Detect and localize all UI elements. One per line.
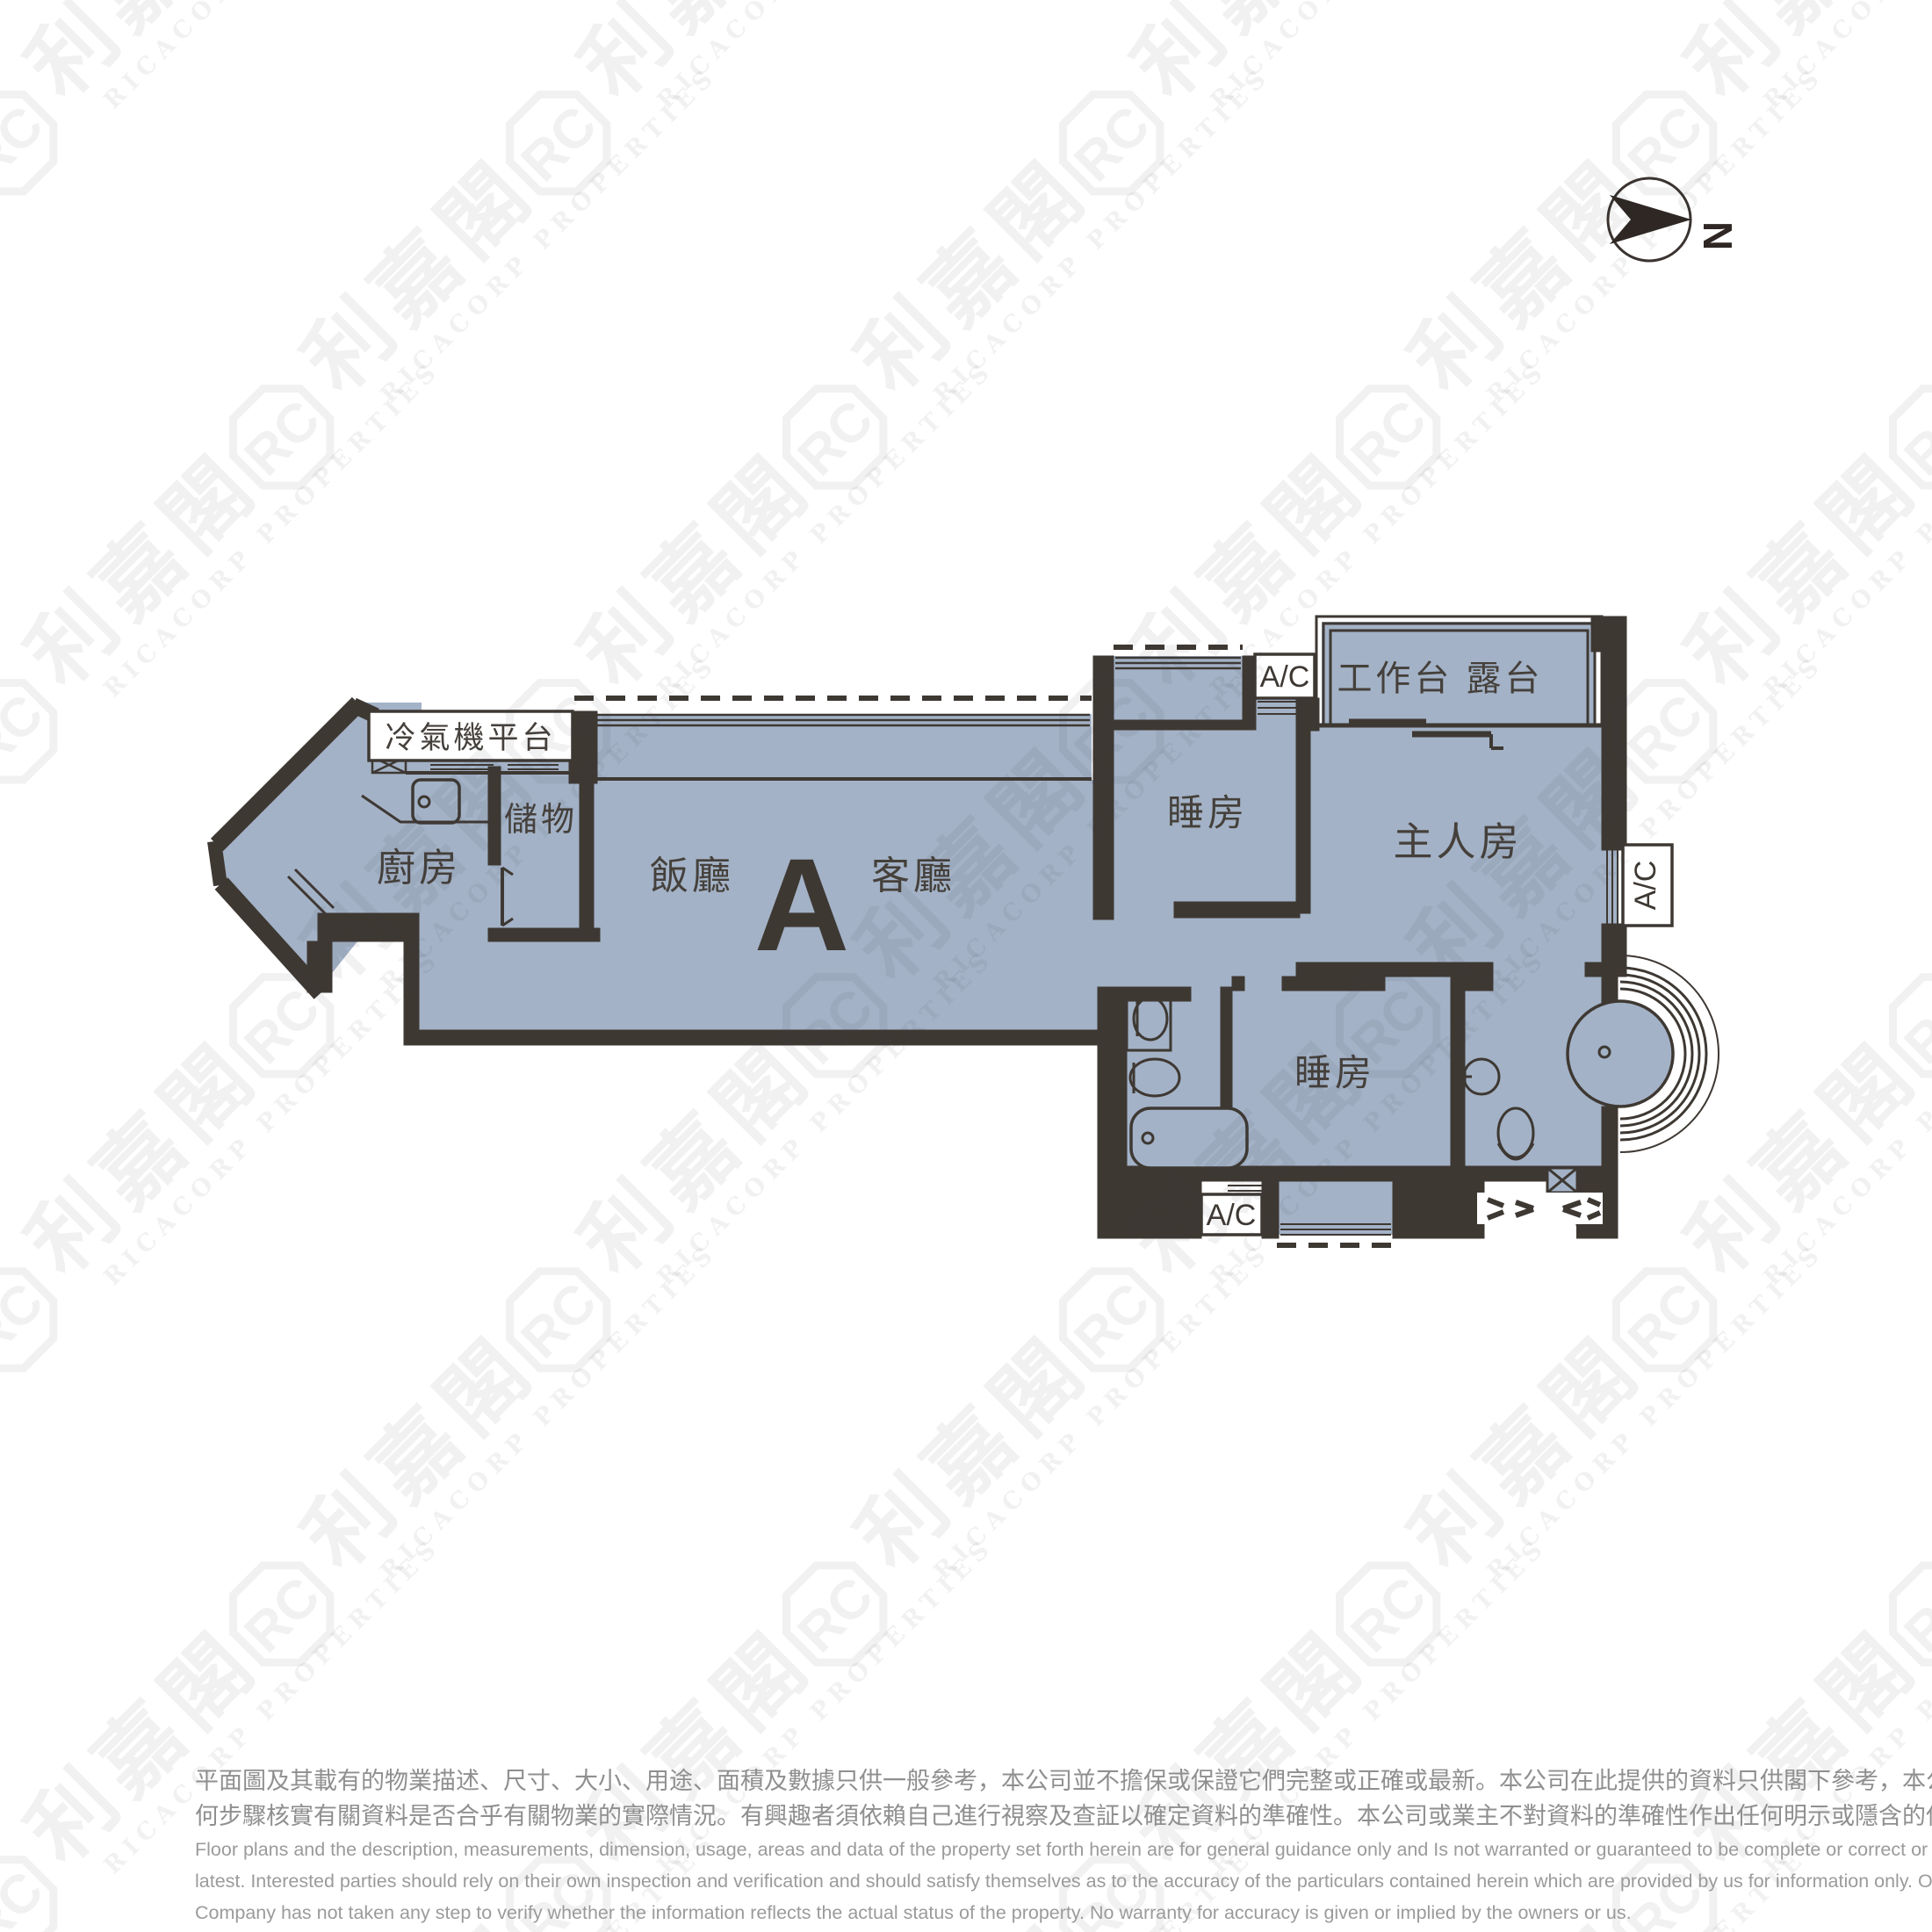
floor-plan: 冷氣機平台 A/C A/C A/C 廚房 儲物 飯廳 A 客廳 睡房 主人房 睡…	[0, 0, 1932, 1932]
compass-north-label: N	[1695, 221, 1741, 250]
ac-platform-box: 冷氣機平台	[369, 711, 573, 761]
kitchen-label: 廚房	[377, 847, 461, 890]
ac-right-label: A/C	[1629, 861, 1662, 911]
master-bedroom-label: 主人房	[1393, 819, 1522, 864]
ac-box-bottom: A/C	[1201, 1194, 1262, 1235]
storage-label: 儲物	[504, 802, 578, 839]
disclaimer-en-line3: Company has not taken any step to verify…	[195, 1897, 1767, 1928]
dining-bay-floor	[573, 714, 1092, 782]
balcony-label: 工作台 露台	[1337, 660, 1543, 698]
living-label: 客廳	[871, 854, 955, 898]
disclaimer-en-line2: latest. Interested parties should rely o…	[195, 1865, 1767, 1897]
ac-box-right: A/C	[1623, 845, 1672, 926]
mbath-x-marker	[1547, 1168, 1577, 1193]
disclaimer-en-line1: Floor plans and the description, measure…	[195, 1834, 1767, 1865]
ac-bottom-label: A/C	[1207, 1199, 1257, 1232]
mbath-round-tub	[1568, 1001, 1673, 1107]
bedroom2-label: 睡房	[1294, 1052, 1375, 1093]
ac-platform-label: 冷氣機平台	[385, 721, 556, 755]
disclaimer-zh-line2: 何步驟核實有關資料是否合乎有關物業的實際情況。有興趣者須依賴自己進行視察及查証以…	[195, 1799, 1767, 1834]
disclaimer-zh-line1: 平面圖及其載有的物業描述、尺寸、大小、用途、面積及數據只供一般參考，本公司並不擔…	[195, 1763, 1767, 1799]
dining-label: 飯廳	[650, 854, 734, 898]
bath1-tub	[1131, 1108, 1247, 1168]
compass: N	[1608, 178, 1741, 261]
bedroom1-label: 睡房	[1167, 792, 1248, 833]
ac-box-top: A/C	[1255, 654, 1315, 698]
floorplan-page: 冷氣機平台 A/C A/C A/C 廚房 儲物 飯廳 A 客廳 睡房 主人房 睡…	[0, 0, 1932, 1932]
disclaimer: 平面圖及其載有的物業描述、尺寸、大小、用途、面積及數據只供一般參考，本公司並不擔…	[195, 1763, 1767, 1928]
wardrobe-floor	[1279, 1181, 1393, 1235]
ac-top-label: A/C	[1260, 660, 1310, 694]
unit-letter: A	[754, 831, 849, 978]
